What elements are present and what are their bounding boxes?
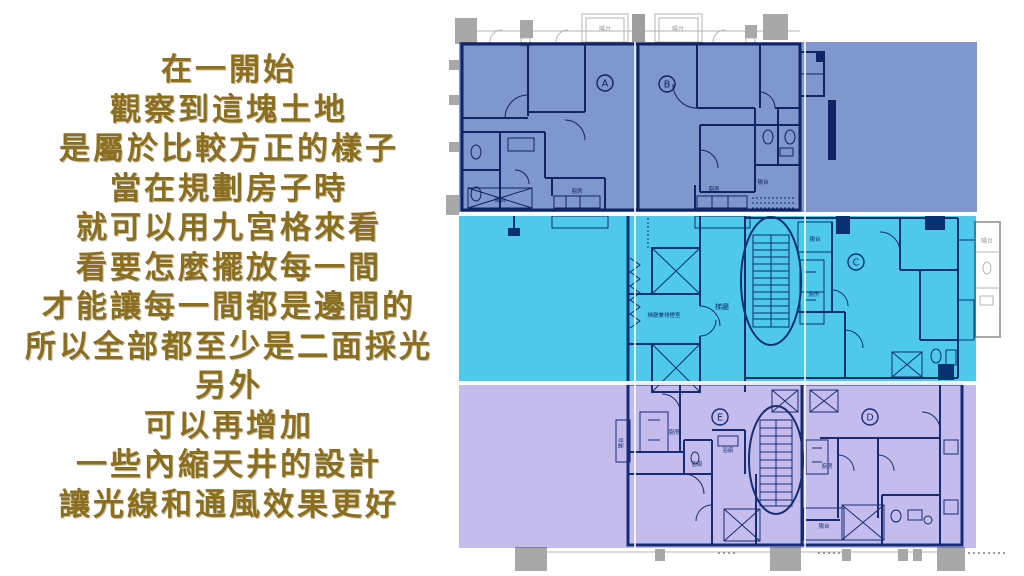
right-gray-annex: 陽台 bbox=[975, 222, 1000, 337]
grid-line-vertical-1 bbox=[634, 42, 636, 548]
bottom-footings bbox=[515, 547, 1005, 571]
slide: { "caption": { "lines": [ "在一開始", "觀察到這塊… bbox=[0, 0, 1024, 576]
room-label: 陽台 bbox=[599, 25, 611, 33]
room-label: 陽台 bbox=[981, 237, 993, 245]
room-label: 陽台 bbox=[672, 25, 684, 33]
highlight-band-top bbox=[459, 42, 977, 212]
grid-gap-horizontal-1 bbox=[459, 212, 977, 216]
grid-line-vertical-2 bbox=[804, 42, 806, 548]
grid-gap-horizontal-2 bbox=[459, 381, 977, 385]
highlight-band-middle bbox=[459, 216, 976, 381]
highlight-band-bottom bbox=[459, 385, 976, 548]
